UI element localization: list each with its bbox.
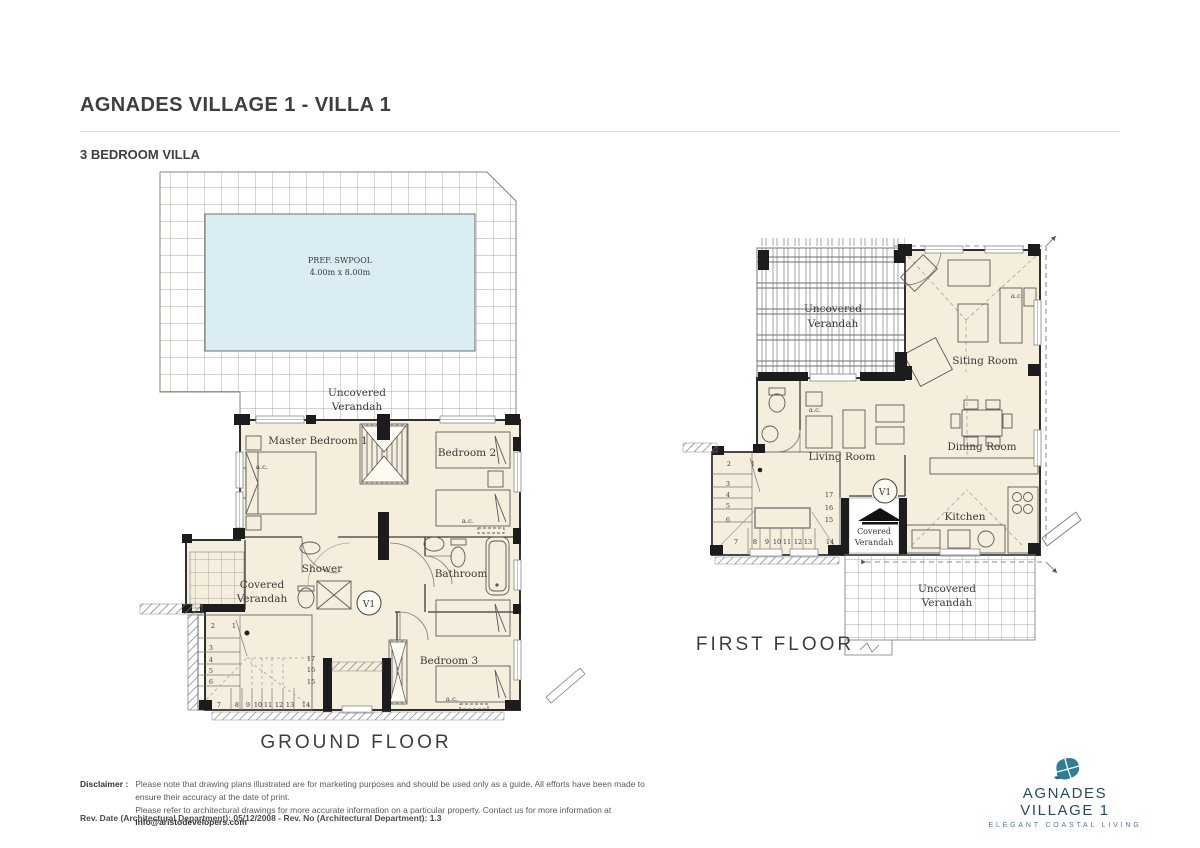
stair-number: 9: [765, 538, 769, 546]
stair-number: 7: [734, 538, 738, 546]
stair-number: 11: [264, 701, 272, 709]
shell-icon: [1045, 756, 1085, 784]
stair-number: 17: [307, 655, 315, 663]
room-label-uncovered-verandah-bottom: Uncovered: [918, 583, 976, 595]
pool-label-line2: 4.00m x 8.00m: [310, 268, 371, 277]
stair-number: 14: [302, 701, 310, 709]
room-label-uncovered-verandah: Verandah: [331, 401, 383, 413]
stair-number: 16: [307, 666, 315, 674]
logo-name: AGNADES VILLAGE 1: [985, 785, 1145, 819]
stair-number: 16: [825, 504, 833, 512]
room-label-uncovered-verandah-top: Verandah: [807, 318, 859, 330]
vent-label: V1: [878, 488, 891, 498]
room-label-covered-verandah-first: Covered: [857, 527, 891, 536]
stair-number: 2: [727, 460, 731, 468]
swimming-pool: [205, 214, 475, 351]
stair-number: 5: [209, 667, 213, 675]
stair-number: 4: [726, 491, 730, 499]
stair-number: 1: [232, 622, 236, 630]
room-label-shower: Shower: [302, 563, 343, 575]
room-label-covered-verandah: Verandah: [236, 593, 288, 605]
stair-number: 13: [286, 701, 294, 709]
ac-label: a.c.: [462, 517, 474, 525]
stair-number: 8: [235, 701, 239, 709]
stair-number: 10: [773, 538, 781, 546]
stair-number: 12: [275, 701, 283, 709]
ac-label: a.c.: [1011, 292, 1023, 300]
stair-number: 17: [825, 491, 833, 499]
logo-tagline: ELEGANT COASTAL LIVING: [985, 822, 1145, 829]
ac-label: a.c.: [809, 406, 821, 414]
stair-number: 1: [751, 460, 755, 468]
pool-label-line1: PREF. SWPOOL: [308, 256, 373, 265]
stair-number: 5: [726, 502, 730, 510]
pergola-ticks: [757, 238, 905, 246]
stair-number: 15: [307, 678, 315, 686]
ground-floor-plan: PREF. SWPOOL 4.00m x 8.00m Uncovered Ver…: [140, 172, 585, 753]
room-label-siting-room: Siting Room: [952, 355, 1017, 367]
stair-number: 10: [254, 701, 262, 709]
first-floor-plan: Uncovered Verandah: [683, 236, 1081, 655]
stair-number: 14: [826, 538, 834, 546]
floor-plan-sheet: AGNADES VILLAGE 1 - VILLA 1 3 BEDROOM VI…: [0, 0, 1200, 848]
room-label-uncovered-verandah-bottom: Verandah: [921, 597, 973, 609]
room-label-uncovered-verandah-top: Uncovered: [804, 303, 862, 315]
ac-label: a.c.: [446, 695, 458, 703]
stair-number: 15: [825, 516, 833, 524]
stair-number: 3: [726, 480, 730, 488]
room-label-master-bedroom: Master Bedroom 1: [268, 435, 367, 447]
ground-floor-title: GROUND FLOOR: [260, 732, 451, 753]
stair-number: 3: [209, 644, 213, 652]
room-label-living-room: Living Room: [809, 451, 876, 463]
first-floor-title: FIRST FLOOR: [696, 634, 854, 655]
stair-number: 12: [794, 538, 802, 546]
entrance-arrow-bar: [862, 522, 898, 525]
room-label-dining-room: Dining Room: [947, 441, 1016, 453]
room-label-covered-verandah: Covered: [240, 579, 285, 591]
revision-line: Rev. Date (Architectural Department): 05…: [80, 813, 442, 823]
disclaimer-line1: Please note that drawing plans illustrat…: [135, 779, 645, 802]
stair-number: 11: [783, 538, 791, 546]
floor-plans-drawing: PREF. SWPOOL 4.00m x 8.00m Uncovered Ver…: [0, 0, 1200, 848]
room-label-uncovered-verandah: Uncovered: [328, 387, 386, 399]
stair-number: 9: [246, 701, 250, 709]
stair-number: 4: [209, 656, 213, 664]
vent-label: V1: [362, 600, 375, 610]
stair-number: 7: [217, 701, 221, 709]
stair-number: 2: [211, 622, 215, 630]
stair-number: 8: [753, 538, 757, 546]
room-label-kitchen: Kitchen: [944, 511, 985, 523]
room-label-bedroom2: Bedroom 2: [438, 447, 496, 459]
room-label-covered-verandah-first: Verandah: [854, 538, 894, 547]
room-label-bathroom: Bathroom: [435, 568, 488, 580]
ac-label: a.c.: [256, 463, 268, 471]
brand-logo: AGNADES VILLAGE 1 ELEGANT COASTAL LIVING: [985, 756, 1145, 829]
room-label-bedroom3: Bedroom 3: [420, 655, 478, 667]
stair-number: 6: [726, 516, 730, 524]
stair-number: 13: [804, 538, 812, 546]
stair-number: 6: [209, 678, 213, 686]
